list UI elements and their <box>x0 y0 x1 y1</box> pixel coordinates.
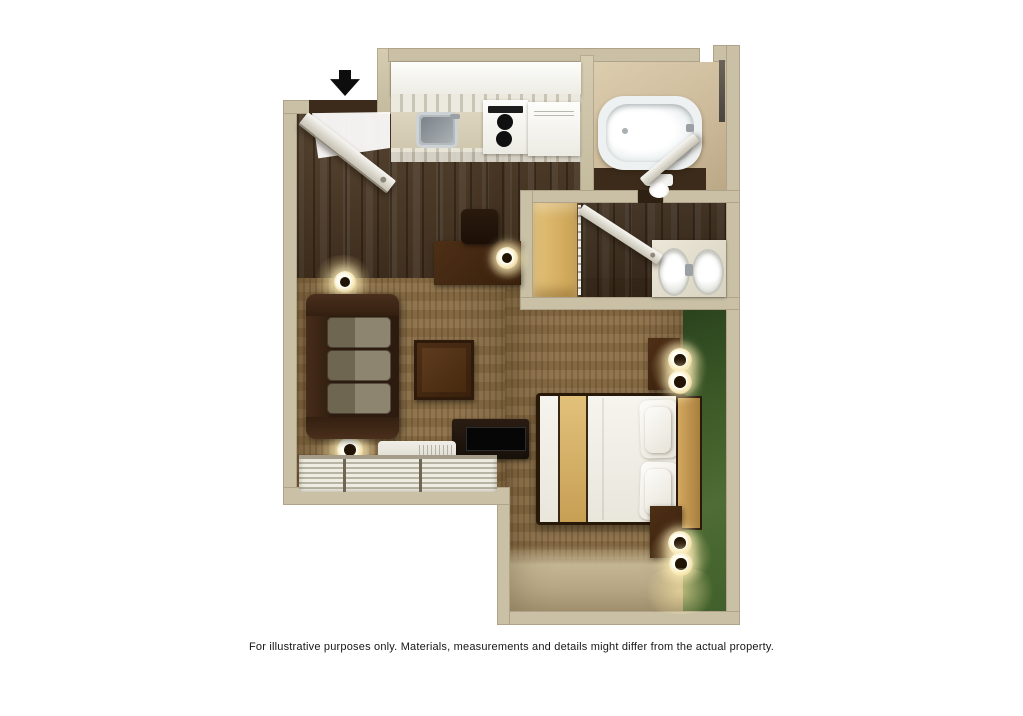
window-mullion-1 <box>343 455 346 492</box>
bathtub-faucet <box>686 124 694 132</box>
wall-bottom <box>497 611 740 625</box>
sofa-armrest-top <box>306 294 399 316</box>
wall-dressing-bottom <box>520 297 740 310</box>
floor-plan-image: For illustrative purposes only. Material… <box>0 0 1023 716</box>
toilet-bowl <box>649 182 669 198</box>
coffee-table <box>414 340 474 400</box>
wall-kitchen-bathroom <box>580 55 594 195</box>
closet-shelves <box>533 203 579 297</box>
kitchen-sink <box>416 112 458 148</box>
coffee-table-top <box>422 348 466 392</box>
vanity-faucet <box>685 264 693 276</box>
wall-top-main <box>388 48 700 62</box>
window-mullion-2 <box>419 455 422 492</box>
table-lamp-upper-2 <box>668 370 692 394</box>
sofa-armrest-bottom <box>306 417 399 439</box>
sink-basin <box>421 117 453 143</box>
refrigerator <box>528 102 580 156</box>
sofa-cushion <box>327 317 391 348</box>
bathroom-mirror-strip <box>719 60 725 122</box>
bed-pillow-2 <box>645 407 671 453</box>
sofa-cushion <box>327 350 391 381</box>
window-blinds <box>299 455 497 492</box>
desk-lamp <box>496 247 518 269</box>
window-head-rail <box>299 455 497 459</box>
stove-knob-strip <box>488 106 523 113</box>
closet-rod <box>578 205 581 295</box>
disclaimer-caption: For illustrative purposes only. Material… <box>0 641 1023 653</box>
wall-sconce-upper <box>334 271 356 293</box>
bed-tan-runner <box>558 396 588 522</box>
entrance-arrow-icon <box>330 70 360 96</box>
sofa-cushions <box>327 317 391 416</box>
stove-burner-1 <box>497 114 513 130</box>
bed-sheet-fold <box>602 398 604 520</box>
door-handle <box>649 252 656 259</box>
sofa <box>306 294 399 439</box>
table-lamp-upper-1 <box>668 348 692 372</box>
table-lamp-lower-2 <box>669 552 693 576</box>
stove <box>483 100 528 154</box>
entry-door-handle <box>379 175 387 183</box>
bathtub <box>598 96 702 170</box>
wall-left <box>283 100 297 505</box>
stove-burner-2 <box>496 131 512 147</box>
wall-bathroom-dressing-right <box>663 190 740 203</box>
bathtub-drain <box>622 128 628 134</box>
refrigerator-handle-lines <box>534 111 574 112</box>
entry-doorway <box>309 100 383 114</box>
wall-bathroom-dressing-left <box>520 190 638 203</box>
sink-faucet <box>450 114 460 119</box>
wall-dressing-left <box>520 190 533 310</box>
vanity-sink-right <box>692 249 724 295</box>
kitchen-upper-cabinets <box>391 62 581 96</box>
wall-step-vertical <box>497 487 510 625</box>
tv <box>466 427 526 451</box>
sofa-cushion <box>327 383 391 414</box>
desk-chair <box>461 209 498 244</box>
wall-right <box>726 45 740 625</box>
